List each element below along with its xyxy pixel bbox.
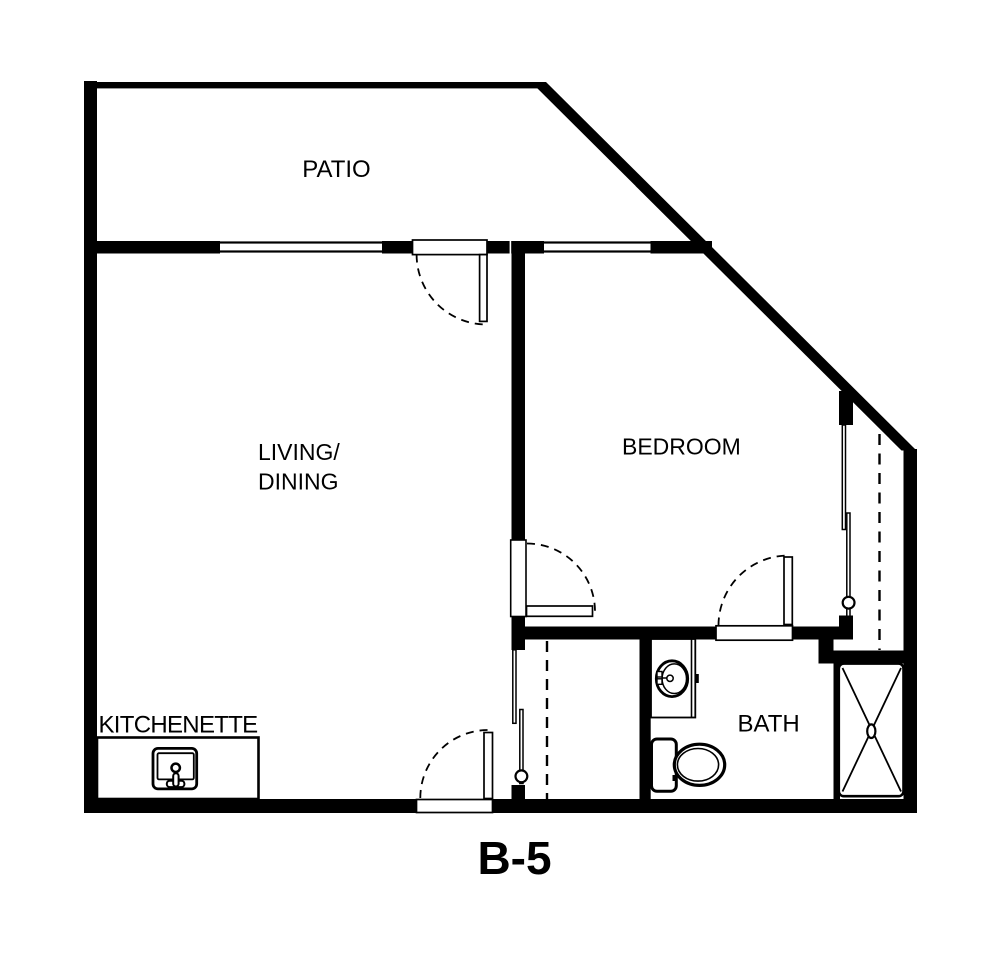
svg-text:KITCHENETTE: KITCHENETTE <box>99 712 258 739</box>
svg-text:B-5: B-5 <box>477 832 551 884</box>
svg-text:BATH: BATH <box>738 711 800 738</box>
svg-text:DINING: DINING <box>258 469 339 495</box>
svg-text:BEDROOM: BEDROOM <box>622 434 741 460</box>
svg-text:PATIO: PATIO <box>302 156 370 183</box>
svg-text:LIVING/: LIVING/ <box>258 439 340 465</box>
